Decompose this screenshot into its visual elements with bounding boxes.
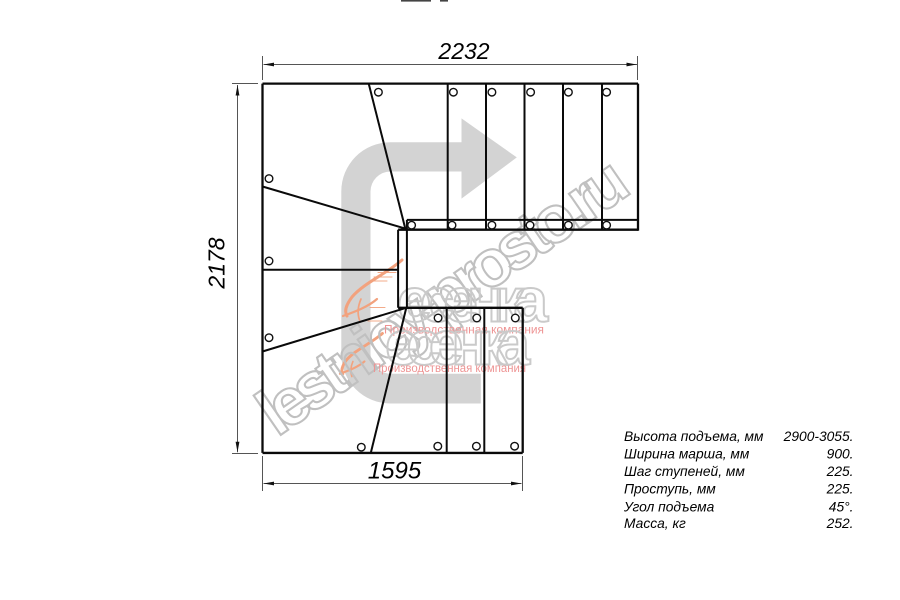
svg-text:2900-3055.: 2900-3055. [783,429,854,444]
svg-text:225.: 225. [826,464,854,479]
svg-text:Ширина марша, мм: Ширина марша, мм [624,447,750,462]
svg-text:2232: 2232 [437,38,489,64]
svg-text:Масса, кг: Масса, кг [624,516,686,531]
svg-text:252.: 252. [826,516,854,531]
svg-text:Высота подъема, мм: Высота подъема, мм [624,429,764,444]
svg-text:225.: 225. [826,482,854,497]
svg-text:Шаг ступеней, мм: Шаг ступеней, мм [624,464,745,479]
svg-text:2178: 2178 [204,237,230,289]
svg-text:Проступь, мм: Проступь, мм [624,482,716,497]
svg-text:900.: 900. [827,447,854,462]
svg-text:Угол подъема: Угол подъема [623,499,715,514]
svg-text:1595: 1595 [368,458,422,485]
svg-text:45°.: 45°. [829,499,854,514]
svg-text:Производственная компания: Производственная компания [373,361,526,375]
